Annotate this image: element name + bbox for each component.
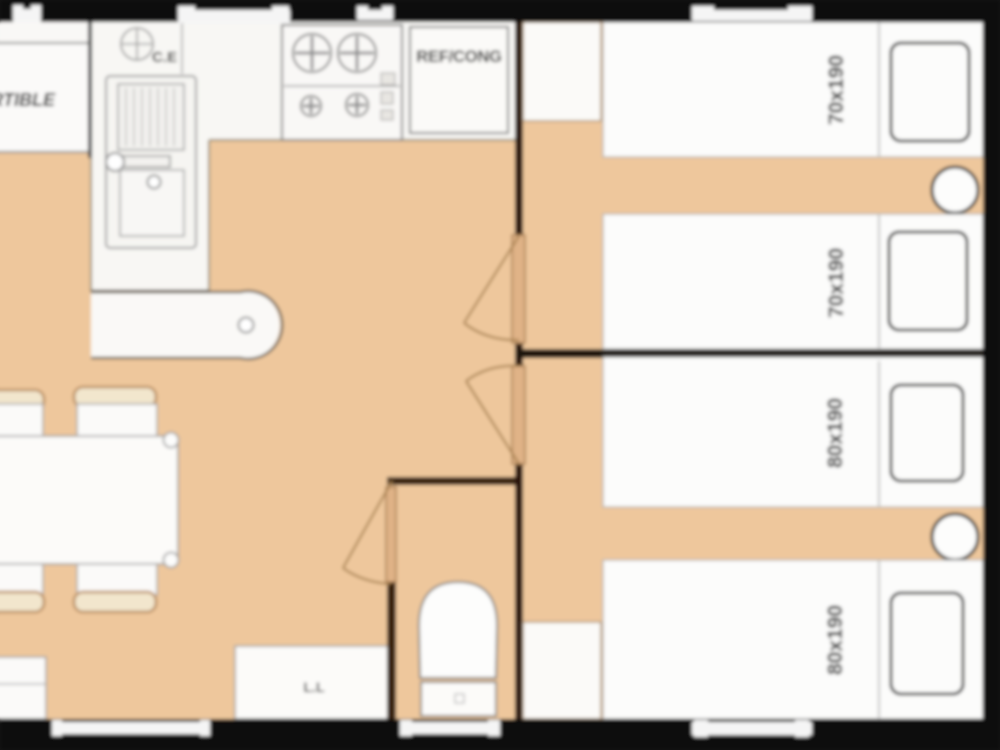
svg-text:C.E: C.E [152,49,177,66]
svg-text:REF/CONG: REF/CONG [416,48,501,66]
svg-text:80x190: 80x190 [824,605,847,675]
svg-text:L.L: L.L [304,679,325,695]
svg-text:70x190: 70x190 [825,248,848,318]
svg-text:80x190: 80x190 [824,398,847,468]
svg-text:CONVERTIBLE: CONVERTIBLE [0,90,56,110]
svg-text:70x190: 70x190 [825,55,848,125]
